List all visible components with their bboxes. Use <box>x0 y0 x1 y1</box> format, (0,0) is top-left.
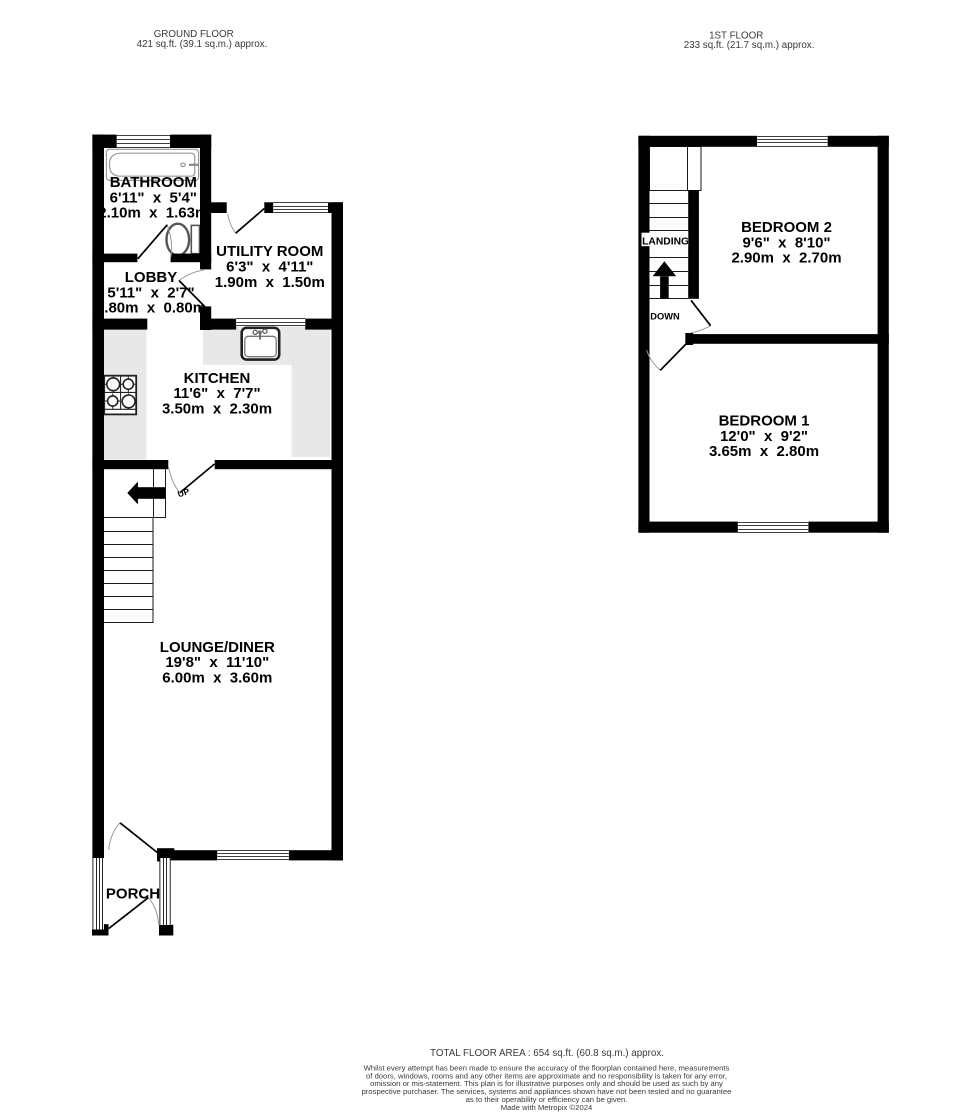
svg-text:UTILITY ROOM: UTILITY ROOM <box>216 243 323 260</box>
svg-text:LANDING: LANDING <box>642 236 689 247</box>
svg-text:2.90m x 2.70m: 2.90m x 2.70m <box>731 250 841 267</box>
svg-text:2.10m x 1.63m: 2.10m x 1.63m <box>98 205 208 222</box>
svg-text:0.80m x 0.80m: 0.80m x 0.80m <box>96 300 206 317</box>
svg-text:3.65m x 2.80m: 3.65m x 2.80m <box>709 443 819 460</box>
svg-text:TOTAL FLOOR AREA : 654 sq.ft.: TOTAL FLOOR AREA : 654 sq.ft. (60.8 sq.m… <box>430 1048 664 1059</box>
svg-text:PORCH: PORCH <box>106 885 160 902</box>
svg-text:6'3" x 4'11": 6'3" x 4'11" <box>226 258 313 275</box>
svg-text:421 sq.ft. (39.1 sq.m.) approx: 421 sq.ft. (39.1 sq.m.) approx. <box>137 39 268 50</box>
svg-text:DOWN: DOWN <box>650 312 680 322</box>
svg-text:6.00m x 3.60m: 6.00m x 3.60m <box>162 669 272 686</box>
svg-text:1.90m x 1.50m: 1.90m x 1.50m <box>215 274 325 291</box>
svg-text:233 sq.ft. (21.7 sq.m.) approx: 233 sq.ft. (21.7 sq.m.) approx. <box>684 40 815 51</box>
svg-text:3.50m x 2.30m: 3.50m x 2.30m <box>162 400 272 417</box>
svg-text:Made with Metropix ©2024: Made with Metropix ©2024 <box>501 1103 593 1112</box>
